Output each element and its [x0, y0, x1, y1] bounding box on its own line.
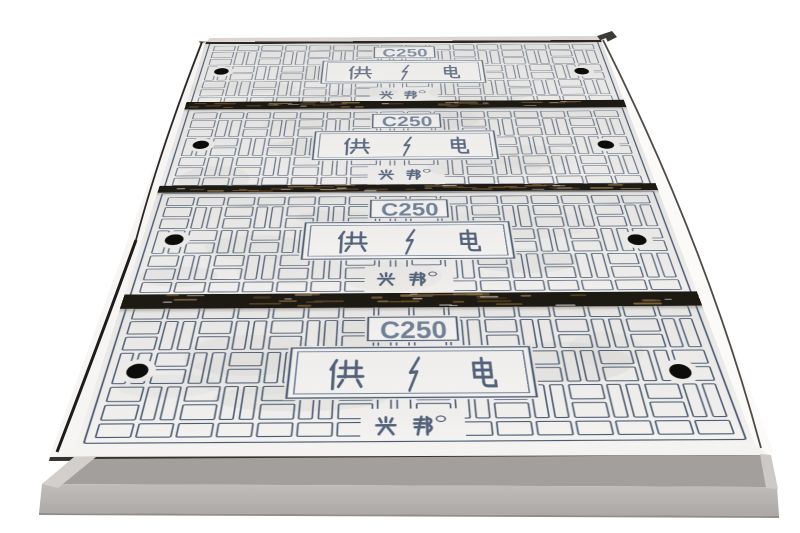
svg-text:C250: C250 — [382, 113, 433, 129]
svg-text:C250: C250 — [380, 316, 448, 344]
svg-text:C250: C250 — [382, 46, 428, 59]
svg-text:C250: C250 — [381, 199, 439, 220]
